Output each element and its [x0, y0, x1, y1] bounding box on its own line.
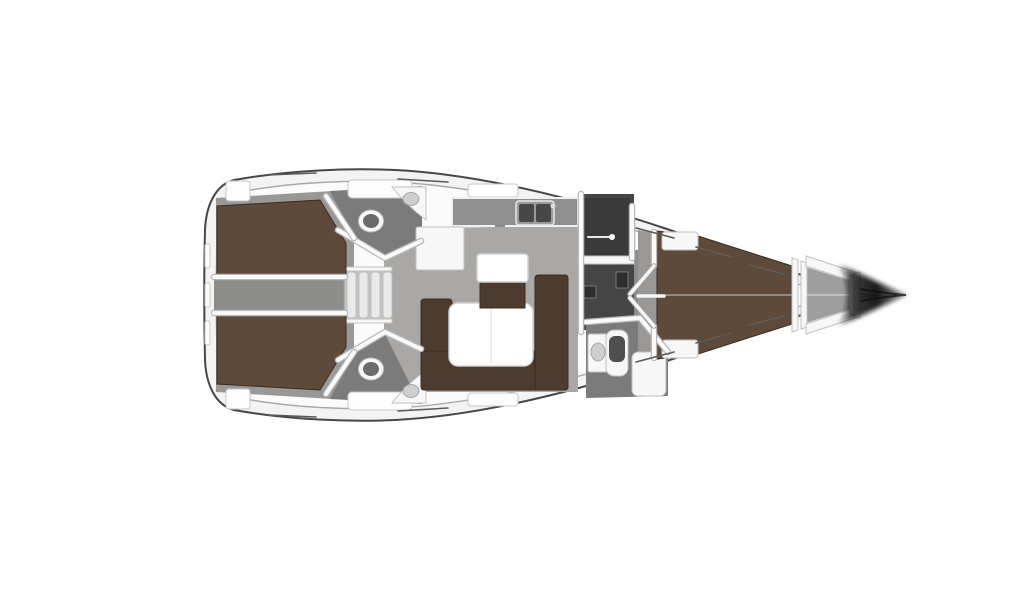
locker-dark	[616, 272, 628, 288]
galley-return-cabinet	[416, 227, 464, 270]
forward-bulkhead	[792, 258, 798, 332]
shower-fitting	[584, 286, 596, 298]
transom-step	[205, 283, 210, 307]
sink-basin-right	[536, 204, 551, 222]
transom-details	[205, 244, 210, 345]
salon-cabinet-top	[477, 254, 528, 282]
wet-room-divider	[578, 256, 634, 264]
toilet-lid	[609, 336, 625, 362]
sink-basin-left	[519, 204, 534, 222]
sink-basin	[403, 193, 419, 206]
steps-rail	[344, 267, 392, 271]
step-tread	[383, 272, 392, 318]
bow-shadow	[838, 264, 908, 326]
wet-room-upper	[582, 198, 630, 256]
sink-basin	[591, 343, 605, 361]
deck-hatch	[468, 184, 518, 197]
door-handle-knob	[609, 234, 615, 240]
forward-locker-top	[662, 232, 698, 250]
step-tread	[347, 272, 356, 318]
aft-berth-port	[217, 200, 346, 277]
toilet-bowl	[363, 214, 379, 228]
settee-right-arm	[535, 275, 568, 390]
stern-locker-hatch	[226, 181, 250, 201]
deck-hatch	[468, 393, 518, 406]
transom-step	[205, 321, 210, 345]
forward-bulkhead	[801, 261, 807, 329]
sink-basin	[403, 385, 419, 398]
step-tread	[359, 272, 368, 318]
toilet-bowl	[363, 362, 379, 376]
yacht-floor-plan	[0, 0, 1024, 600]
transom-step	[205, 244, 210, 268]
salon-cabinet-base	[480, 280, 525, 308]
stern-locker-hatch	[226, 389, 250, 409]
step-tread	[371, 272, 380, 318]
companionway-steps	[344, 267, 392, 323]
galley-counter	[452, 198, 578, 226]
faucet	[551, 204, 556, 209]
aft-berth-starboard	[217, 313, 346, 390]
steps-rail	[344, 319, 392, 323]
